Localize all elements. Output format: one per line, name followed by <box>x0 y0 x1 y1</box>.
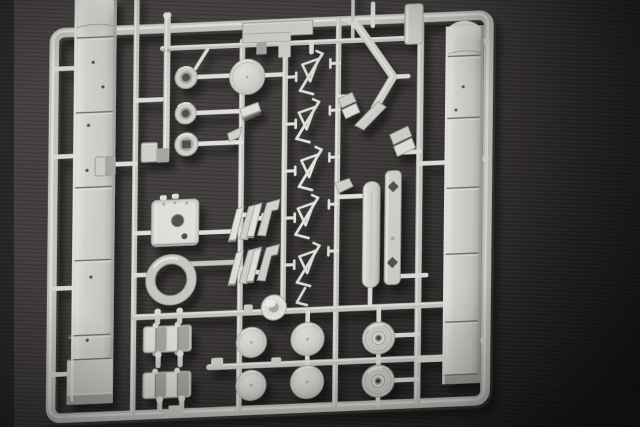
sprue-photo <box>0 0 640 427</box>
film-grain <box>0 0 640 427</box>
photo-canvas <box>0 0 640 427</box>
